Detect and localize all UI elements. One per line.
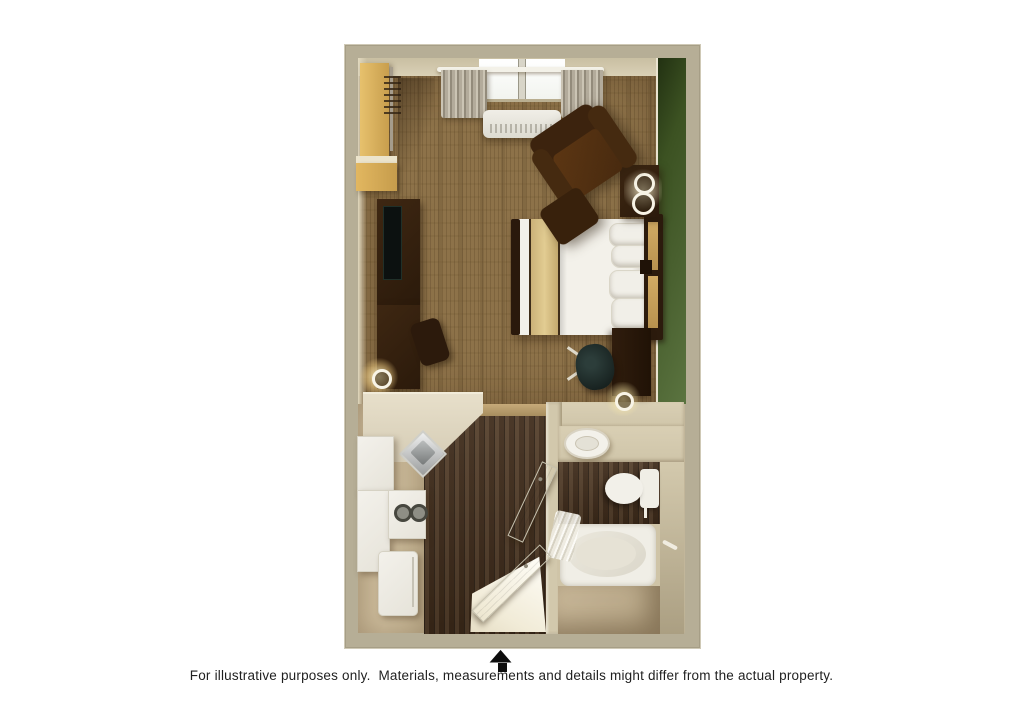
kitchen-cabinet-upper — [357, 436, 394, 492]
credenza-lamp — [372, 369, 392, 389]
bathroom-sink-basin — [575, 436, 599, 451]
bed-footboard — [511, 219, 520, 335]
toilet-paper-holder — [644, 506, 647, 518]
tv-console — [377, 199, 420, 305]
bathroom-door-handle — [538, 477, 543, 482]
entry-door-handle — [523, 563, 529, 569]
window-mullion — [518, 59, 526, 99]
bathtub-basin-inner — [576, 537, 636, 570]
closet-shadow — [398, 78, 434, 170]
floor-plan-page: ▲ For illustrative purposes only. Materi… — [0, 0, 1023, 716]
stove-burner — [410, 504, 428, 522]
headboard — [644, 214, 663, 340]
bathroom-floor — [558, 586, 662, 634]
toilet-bowl — [605, 473, 643, 504]
refrigerator-handle — [412, 557, 414, 607]
curtain-left — [441, 70, 487, 118]
tv-screen — [383, 206, 402, 280]
headboard-bracket — [640, 260, 652, 274]
headboard-panel — [648, 276, 658, 328]
bathroom-sink — [564, 428, 610, 459]
refrigerator — [378, 551, 418, 616]
desk-lamp — [615, 392, 634, 411]
entry-arrow-glyph: ▲ — [482, 649, 522, 663]
closet-shelf-lower — [356, 163, 397, 191]
stove — [388, 490, 426, 539]
disclaimer-text: For illustrative purposes only. Material… — [0, 668, 1023, 683]
kitchen-sink-basin — [410, 440, 435, 465]
